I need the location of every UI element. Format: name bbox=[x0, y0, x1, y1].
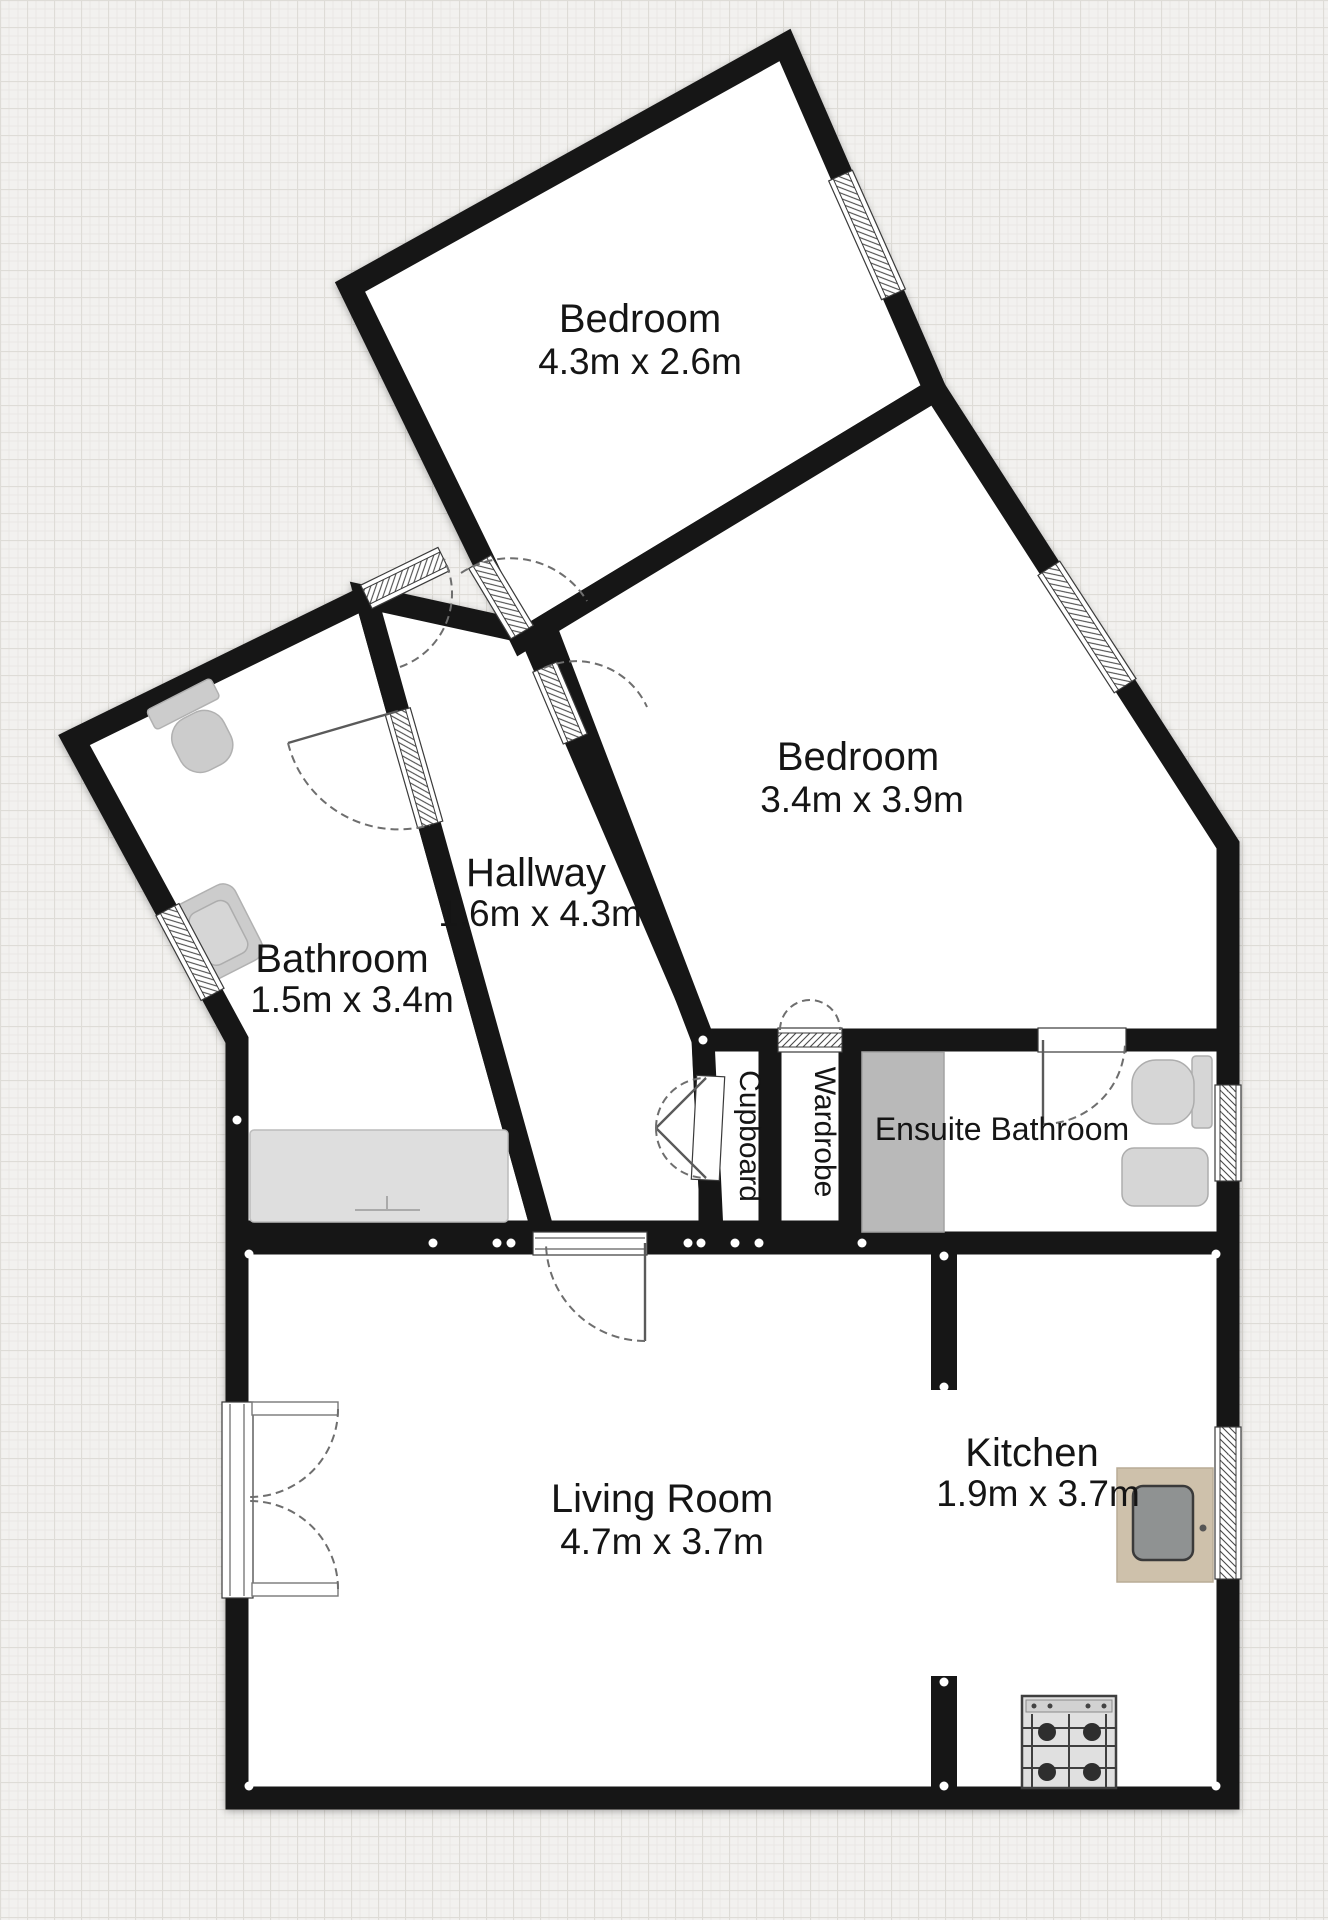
room-label-bathroom: Bathroom bbox=[255, 937, 428, 981]
room-label-wardrobe: Wardrobe bbox=[808, 1067, 841, 1198]
room-dims-bedroom-2: 3.4m x 3.9m bbox=[760, 779, 964, 820]
wall-stub-bottom bbox=[931, 1676, 957, 1788]
room-label-kitchen: Kitchen bbox=[965, 1431, 1098, 1475]
room-dims-bathroom: 1.5m x 3.4m bbox=[250, 979, 454, 1020]
door-threshold-wardrobe bbox=[778, 1028, 842, 1052]
room-label-bedroom-2: Bedroom bbox=[777, 735, 939, 779]
room-dims-bedroom-1: 4.3m x 2.6m bbox=[538, 341, 742, 382]
room-dims-living-room: 4.7m x 3.7m bbox=[560, 1521, 764, 1562]
room-label-ensuite: Ensuite Bathroom bbox=[875, 1111, 1129, 1147]
room-label-bedroom-1: Bedroom bbox=[559, 297, 721, 341]
floorplan-page: Bedroom 4.3m x 2.6m Bedroom 3.4m x 3.9m … bbox=[0, 0, 1328, 1920]
ensuite-toilet-fixture bbox=[1132, 1056, 1212, 1128]
stove-fixture bbox=[1022, 1696, 1116, 1788]
room-dims-kitchen: 1.9m x 3.7m bbox=[936, 1473, 1140, 1514]
room-label-living-room: Living Room bbox=[551, 1477, 773, 1521]
door-opening-living-room bbox=[533, 1232, 647, 1255]
bathtub-fixture bbox=[250, 1130, 508, 1222]
wall-stub-top bbox=[931, 1252, 957, 1390]
room-label-cupboard: Cupboard bbox=[733, 1070, 766, 1202]
room-label-hallway: Hallway bbox=[466, 851, 606, 895]
window-ensuite bbox=[1215, 1085, 1241, 1181]
floorplan-canvas: Bedroom 4.3m x 2.6m Bedroom 3.4m x 3.9m … bbox=[0, 0, 1328, 1920]
ensuite-sink-fixture bbox=[1122, 1148, 1208, 1206]
door-opening-ensuite bbox=[1038, 1028, 1126, 1052]
door-threshold-cupboard bbox=[691, 1075, 724, 1180]
window-kitchen bbox=[1215, 1427, 1241, 1579]
room-dims-hallway: 1.6m x 4.3m bbox=[438, 893, 642, 934]
